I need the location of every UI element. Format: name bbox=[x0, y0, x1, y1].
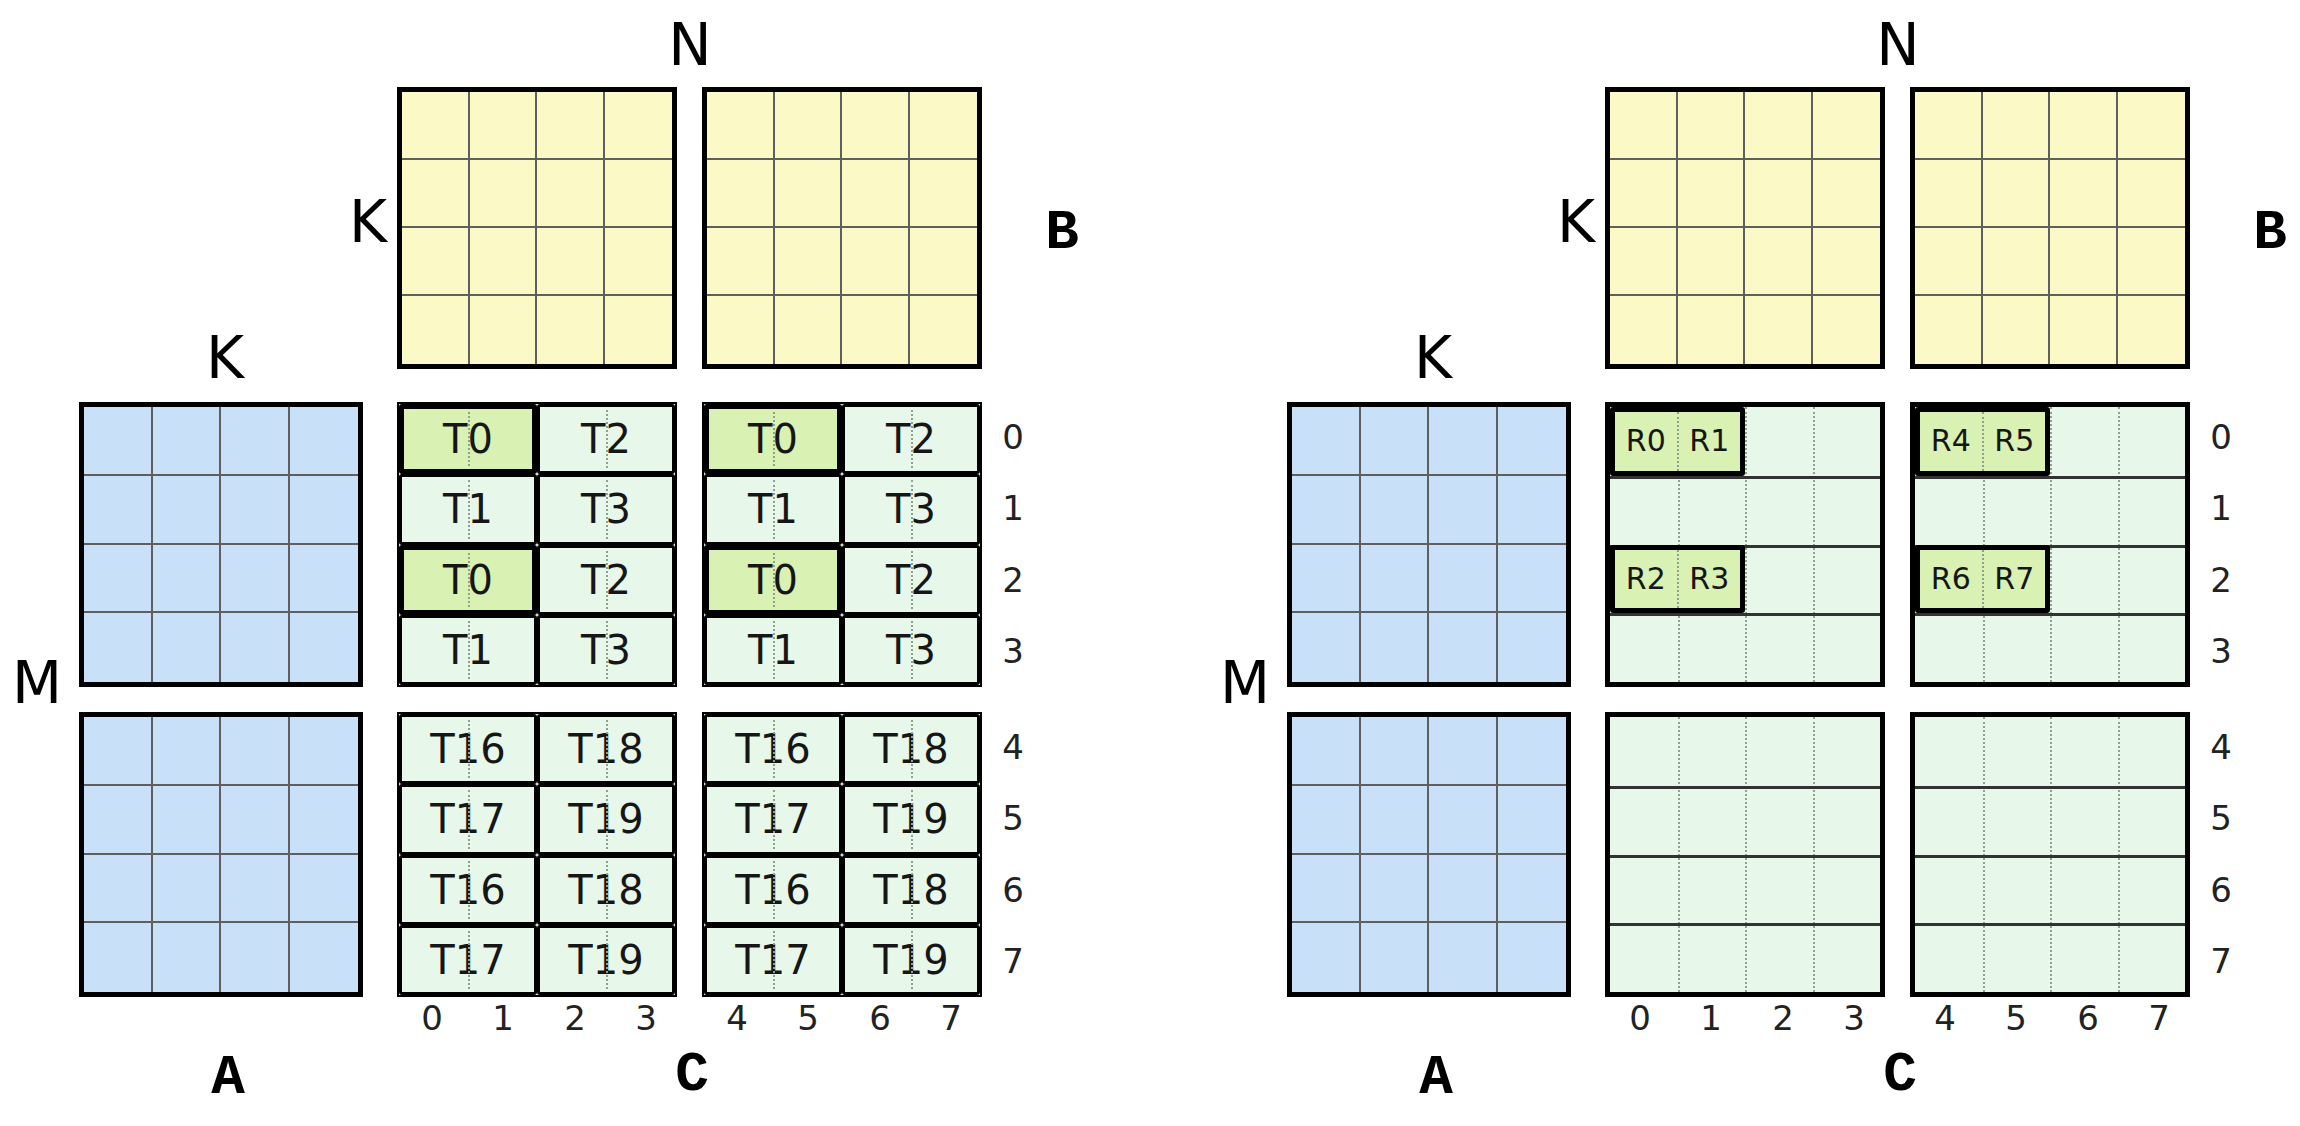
matrix-cell bbox=[1498, 407, 1567, 476]
c-thread-tile: T3 bbox=[537, 474, 675, 544]
col-index-label: 7 bbox=[940, 1001, 962, 1035]
matrix-cell bbox=[153, 923, 222, 992]
c-register-tile: R7 bbox=[1982, 550, 2046, 609]
matrix-cell bbox=[1813, 160, 1881, 228]
matrix-cell bbox=[84, 923, 153, 992]
c-thread-tile: T19 bbox=[537, 925, 675, 995]
matrix-label-c: C bbox=[1883, 1047, 1917, 1103]
c-thread-tile: T19 bbox=[842, 784, 980, 854]
col-index-label: 3 bbox=[635, 1001, 657, 1035]
c-register-tile: R1 bbox=[1677, 412, 1741, 471]
matrix-cell bbox=[1915, 228, 1983, 296]
matrix-cell bbox=[605, 160, 673, 228]
matrix-cell bbox=[1678, 296, 1746, 364]
matrix-cell bbox=[1292, 855, 1361, 924]
matrix-cell bbox=[84, 407, 153, 476]
matrix-label-a: A bbox=[211, 1050, 245, 1106]
matrix-label-b: B bbox=[1045, 205, 1079, 261]
matrix-cell bbox=[842, 296, 910, 364]
matrix-cell bbox=[1429, 923, 1498, 992]
c-register-tile: R3 bbox=[1677, 550, 1741, 609]
col-index-label: 1 bbox=[492, 1001, 514, 1035]
matrix-cell bbox=[1361, 717, 1430, 786]
c-thread-tile: T16 bbox=[399, 855, 537, 925]
matrix-cell bbox=[1292, 407, 1361, 476]
matrix-cell bbox=[1429, 545, 1498, 614]
matrix-cell bbox=[1292, 476, 1361, 545]
dim-label-n: N bbox=[668, 16, 711, 74]
matrix-cell bbox=[84, 545, 153, 614]
col-index-label: 2 bbox=[1772, 1001, 1794, 1035]
c-thread-tile: T2 bbox=[842, 545, 980, 615]
matrix-cell bbox=[1361, 855, 1430, 924]
dim-label-k-b: K bbox=[349, 193, 387, 251]
matrix-cell bbox=[842, 92, 910, 160]
matrix-cell bbox=[1429, 407, 1498, 476]
matrix-cell bbox=[1745, 228, 1813, 296]
matrix-label-c: C bbox=[675, 1047, 709, 1103]
row-index-label: 2 bbox=[2210, 563, 2232, 597]
c-block-bottom-left: T16 T18 T17 T19 T16 T18 T17 T19 bbox=[397, 712, 677, 997]
matrix-cell bbox=[1983, 92, 2051, 160]
matrix-cell bbox=[153, 476, 222, 545]
c-thread-tile: T16 bbox=[704, 855, 842, 925]
gemm-tiling-figure: N K B K M A C T0 T2 T1 T3 T0 T2 T1 T3 T0… bbox=[0, 0, 2300, 1126]
matrix-cell bbox=[290, 786, 359, 855]
diagram-register-tiles: N K B K M A C R0 R1 R2 R3 bbox=[1208, 0, 2300, 1126]
matrix-cell bbox=[221, 923, 290, 992]
matrix-b-block-1 bbox=[397, 87, 677, 369]
col-index-label: 2 bbox=[564, 1001, 586, 1035]
col-index-label: 5 bbox=[797, 1001, 819, 1035]
row-index-label: 6 bbox=[2210, 873, 2232, 907]
matrix-cell bbox=[1983, 160, 2051, 228]
c-thread-tile: T1 bbox=[704, 615, 842, 685]
grid-divider bbox=[1915, 476, 2185, 479]
matrix-label-a: A bbox=[1419, 1050, 1453, 1106]
matrix-cell bbox=[1292, 545, 1361, 614]
dim-label-k-b: K bbox=[1557, 193, 1595, 251]
matrix-cell bbox=[402, 296, 470, 364]
col-index-label: 5 bbox=[2005, 1001, 2027, 1035]
c-thread-tile: T0 bbox=[399, 404, 537, 474]
row-index-label: 0 bbox=[1002, 420, 1024, 454]
c-block-bottom-right bbox=[1910, 712, 2190, 997]
matrix-cell bbox=[1915, 92, 1983, 160]
matrix-a-block-2 bbox=[1287, 712, 1571, 997]
matrix-cell bbox=[842, 160, 910, 228]
col-index-label: 7 bbox=[2148, 1001, 2170, 1035]
matrix-cell bbox=[1498, 476, 1567, 545]
matrix-cell bbox=[775, 228, 843, 296]
c-thread-tile: T0 bbox=[704, 404, 842, 474]
matrix-cell bbox=[1429, 476, 1498, 545]
c-thread-tile: T19 bbox=[842, 925, 980, 995]
matrix-cell bbox=[2118, 160, 2186, 228]
matrix-cell bbox=[1498, 923, 1567, 992]
matrix-cell bbox=[910, 296, 978, 364]
c-thread-tile: T18 bbox=[537, 714, 675, 784]
matrix-cell bbox=[290, 923, 359, 992]
matrix-cell bbox=[290, 476, 359, 545]
c-thread-tile: T2 bbox=[537, 404, 675, 474]
c-register-tile-group: R4 R5 bbox=[1915, 407, 2050, 476]
matrix-cell bbox=[775, 160, 843, 228]
c-block-top-right: R4 R5 R6 R7 bbox=[1910, 402, 2190, 687]
c-register-tile: R6 bbox=[1920, 550, 1982, 609]
matrix-cell bbox=[221, 786, 290, 855]
matrix-cell bbox=[1610, 92, 1678, 160]
c-register-tile: R0 bbox=[1615, 412, 1677, 471]
matrix-cell bbox=[1610, 228, 1678, 296]
matrix-cell bbox=[1498, 717, 1567, 786]
dim-label-n: N bbox=[1876, 16, 1919, 74]
c-block-bottom-left bbox=[1605, 712, 1885, 997]
matrix-cell bbox=[707, 92, 775, 160]
matrix-cell bbox=[402, 92, 470, 160]
matrix-cell bbox=[605, 228, 673, 296]
matrix-cell bbox=[775, 296, 843, 364]
matrix-cell bbox=[153, 407, 222, 476]
matrix-cell bbox=[402, 160, 470, 228]
matrix-cell bbox=[1813, 92, 1881, 160]
col-index-label: 6 bbox=[869, 1001, 891, 1035]
c-thread-tile: T0 bbox=[704, 545, 842, 615]
matrix-cell bbox=[290, 717, 359, 786]
row-index-label: 4 bbox=[2210, 730, 2232, 764]
matrix-cell bbox=[537, 92, 605, 160]
matrix-b-block-2 bbox=[1910, 87, 2190, 369]
matrix-cell bbox=[1498, 855, 1567, 924]
matrix-cell bbox=[1361, 613, 1430, 682]
matrix-cell bbox=[1498, 545, 1567, 614]
matrix-cell bbox=[290, 855, 359, 924]
matrix-cell bbox=[1915, 160, 1983, 228]
matrix-cell bbox=[537, 160, 605, 228]
matrix-cell bbox=[1429, 717, 1498, 786]
matrix-cell bbox=[84, 717, 153, 786]
matrix-cell bbox=[221, 855, 290, 924]
matrix-cell bbox=[1361, 786, 1430, 855]
c-thread-tile: T2 bbox=[537, 545, 675, 615]
matrix-cell bbox=[84, 786, 153, 855]
grid-divider bbox=[1915, 855, 2185, 858]
matrix-a-block-1 bbox=[1287, 402, 1571, 687]
matrix-cell bbox=[2050, 160, 2118, 228]
c-thread-tile: T1 bbox=[399, 615, 537, 685]
matrix-cell bbox=[221, 545, 290, 614]
c-thread-tile: T3 bbox=[537, 615, 675, 685]
matrix-cell bbox=[221, 476, 290, 545]
row-index-label: 0 bbox=[2210, 420, 2232, 454]
matrix-cell bbox=[2050, 296, 2118, 364]
c-register-tile-group: R2 R3 bbox=[1610, 545, 1745, 614]
matrix-cell bbox=[1813, 296, 1881, 364]
dim-label-k-a: K bbox=[1414, 329, 1452, 387]
matrix-cell bbox=[707, 228, 775, 296]
row-index-label: 5 bbox=[2210, 801, 2232, 835]
matrix-cell bbox=[1745, 296, 1813, 364]
dim-label-m: M bbox=[1220, 654, 1270, 712]
matrix-cell bbox=[1292, 923, 1361, 992]
matrix-cell bbox=[1915, 296, 1983, 364]
row-index-label: 3 bbox=[2210, 634, 2232, 668]
matrix-cell bbox=[2050, 228, 2118, 296]
matrix-cell bbox=[707, 160, 775, 228]
matrix-cell bbox=[1813, 228, 1881, 296]
matrix-cell bbox=[290, 545, 359, 614]
grid-divider bbox=[1610, 855, 1880, 858]
row-index-label: 7 bbox=[1002, 944, 1024, 978]
matrix-cell bbox=[1678, 160, 1746, 228]
matrix-cell bbox=[221, 407, 290, 476]
c-thread-tile: T17 bbox=[399, 784, 537, 854]
c-thread-tile: T17 bbox=[704, 925, 842, 995]
row-index-label: 1 bbox=[1002, 491, 1024, 525]
matrix-cell bbox=[605, 92, 673, 160]
grid-divider bbox=[1915, 613, 2185, 616]
matrix-a-block-2 bbox=[79, 712, 363, 997]
c-thread-tile: T18 bbox=[537, 855, 675, 925]
c-thread-tile: T2 bbox=[842, 404, 980, 474]
col-index-label: 0 bbox=[421, 1001, 443, 1035]
row-index-label: 1 bbox=[2210, 491, 2232, 525]
matrix-cell bbox=[2118, 228, 2186, 296]
matrix-cell bbox=[1983, 228, 2051, 296]
grid-divider bbox=[1610, 476, 1880, 479]
matrix-cell bbox=[153, 855, 222, 924]
c-register-tile-group: R6 R7 bbox=[1915, 545, 2050, 614]
row-index-label: 2 bbox=[1002, 563, 1024, 597]
matrix-cell bbox=[1361, 923, 1430, 992]
matrix-cell bbox=[153, 545, 222, 614]
c-thread-tile: T16 bbox=[399, 714, 537, 784]
c-block-top-left: T0 T2 T1 T3 T0 T2 T1 T3 bbox=[397, 402, 677, 687]
grid-divider bbox=[1915, 923, 2185, 926]
matrix-cell bbox=[1292, 786, 1361, 855]
matrix-cell bbox=[221, 717, 290, 786]
c-thread-tile: T18 bbox=[842, 714, 980, 784]
matrix-cell bbox=[153, 613, 222, 682]
grid-divider bbox=[1610, 923, 1880, 926]
matrix-cell bbox=[1610, 296, 1678, 364]
c-register-tile: R2 bbox=[1615, 550, 1677, 609]
c-thread-tile: T0 bbox=[399, 545, 537, 615]
matrix-cell bbox=[2118, 92, 2186, 160]
dim-label-m: M bbox=[12, 654, 62, 712]
matrix-cell bbox=[1292, 717, 1361, 786]
matrix-cell bbox=[470, 296, 538, 364]
matrix-cell bbox=[775, 92, 843, 160]
matrix-cell bbox=[153, 786, 222, 855]
c-thread-tile: T19 bbox=[537, 784, 675, 854]
matrix-cell bbox=[707, 296, 775, 364]
c-register-tile: R4 bbox=[1920, 412, 1982, 471]
row-index-label: 4 bbox=[1002, 730, 1024, 764]
matrix-cell bbox=[1429, 855, 1498, 924]
grid-divider bbox=[1915, 786, 2185, 789]
matrix-cell bbox=[84, 855, 153, 924]
col-index-label: 4 bbox=[1934, 1001, 1956, 1035]
matrix-cell bbox=[910, 92, 978, 160]
row-index-label: 6 bbox=[1002, 873, 1024, 907]
dim-label-k-a: K bbox=[206, 329, 244, 387]
matrix-cell bbox=[84, 613, 153, 682]
matrix-cell bbox=[1429, 613, 1498, 682]
matrix-cell bbox=[221, 613, 290, 682]
diagram-thread-tiles: N K B K M A C T0 T2 T1 T3 T0 T2 T1 T3 T0… bbox=[0, 0, 1150, 1126]
c-block-bottom-right: T16 T18 T17 T19 T16 T18 T17 T19 bbox=[702, 712, 982, 997]
c-thread-tile: T1 bbox=[704, 474, 842, 544]
c-thread-tile: T3 bbox=[842, 474, 980, 544]
matrix-cell bbox=[84, 476, 153, 545]
matrix-cell bbox=[470, 160, 538, 228]
matrix-cell bbox=[402, 228, 470, 296]
matrix-cell bbox=[1361, 407, 1430, 476]
c-block-top-left: R0 R1 R2 R3 bbox=[1605, 402, 1885, 687]
row-index-label: 7 bbox=[2210, 944, 2232, 978]
matrix-cell bbox=[1498, 613, 1567, 682]
matrix-cell bbox=[1678, 92, 1746, 160]
col-index-label: 1 bbox=[1700, 1001, 1722, 1035]
c-thread-tile: T17 bbox=[399, 925, 537, 995]
matrix-cell bbox=[1361, 545, 1430, 614]
matrix-cell bbox=[1745, 160, 1813, 228]
matrix-cell bbox=[537, 228, 605, 296]
matrix-cell bbox=[537, 296, 605, 364]
matrix-cell bbox=[2050, 92, 2118, 160]
matrix-cell bbox=[1678, 228, 1746, 296]
matrix-cell bbox=[605, 296, 673, 364]
col-index-label: 3 bbox=[1843, 1001, 1865, 1035]
c-thread-tile: T16 bbox=[704, 714, 842, 784]
matrix-cell bbox=[470, 228, 538, 296]
matrix-b-block-2 bbox=[702, 87, 982, 369]
matrix-cell bbox=[910, 228, 978, 296]
matrix-cell bbox=[1983, 296, 2051, 364]
row-index-label: 3 bbox=[1002, 634, 1024, 668]
grid-divider bbox=[1610, 613, 1880, 616]
matrix-cell bbox=[1361, 476, 1430, 545]
matrix-cell bbox=[2118, 296, 2186, 364]
matrix-a-block-1 bbox=[79, 402, 363, 687]
c-register-tile: R5 bbox=[1982, 412, 2046, 471]
matrix-cell bbox=[290, 407, 359, 476]
matrix-cell bbox=[1745, 92, 1813, 160]
c-thread-tile: T18 bbox=[842, 855, 980, 925]
matrix-cell bbox=[1610, 160, 1678, 228]
matrix-cell bbox=[470, 92, 538, 160]
c-block-top-right: T0 T2 T1 T3 T0 T2 T1 T3 bbox=[702, 402, 982, 687]
c-thread-tile: T1 bbox=[399, 474, 537, 544]
c-thread-tile: T17 bbox=[704, 784, 842, 854]
matrix-label-b: B bbox=[2253, 205, 2287, 261]
matrix-b-block-1 bbox=[1605, 87, 1885, 369]
c-thread-tile: T3 bbox=[842, 615, 980, 685]
col-index-label: 0 bbox=[1629, 1001, 1651, 1035]
matrix-cell bbox=[1429, 786, 1498, 855]
matrix-cell bbox=[1498, 786, 1567, 855]
matrix-cell bbox=[153, 717, 222, 786]
row-index-label: 5 bbox=[1002, 801, 1024, 835]
grid-divider bbox=[1610, 786, 1880, 789]
c-register-tile-group: R0 R1 bbox=[1610, 407, 1745, 476]
matrix-cell bbox=[842, 228, 910, 296]
col-index-label: 4 bbox=[726, 1001, 748, 1035]
col-index-label: 6 bbox=[2077, 1001, 2099, 1035]
matrix-cell bbox=[910, 160, 978, 228]
matrix-cell bbox=[290, 613, 359, 682]
matrix-cell bbox=[1292, 613, 1361, 682]
